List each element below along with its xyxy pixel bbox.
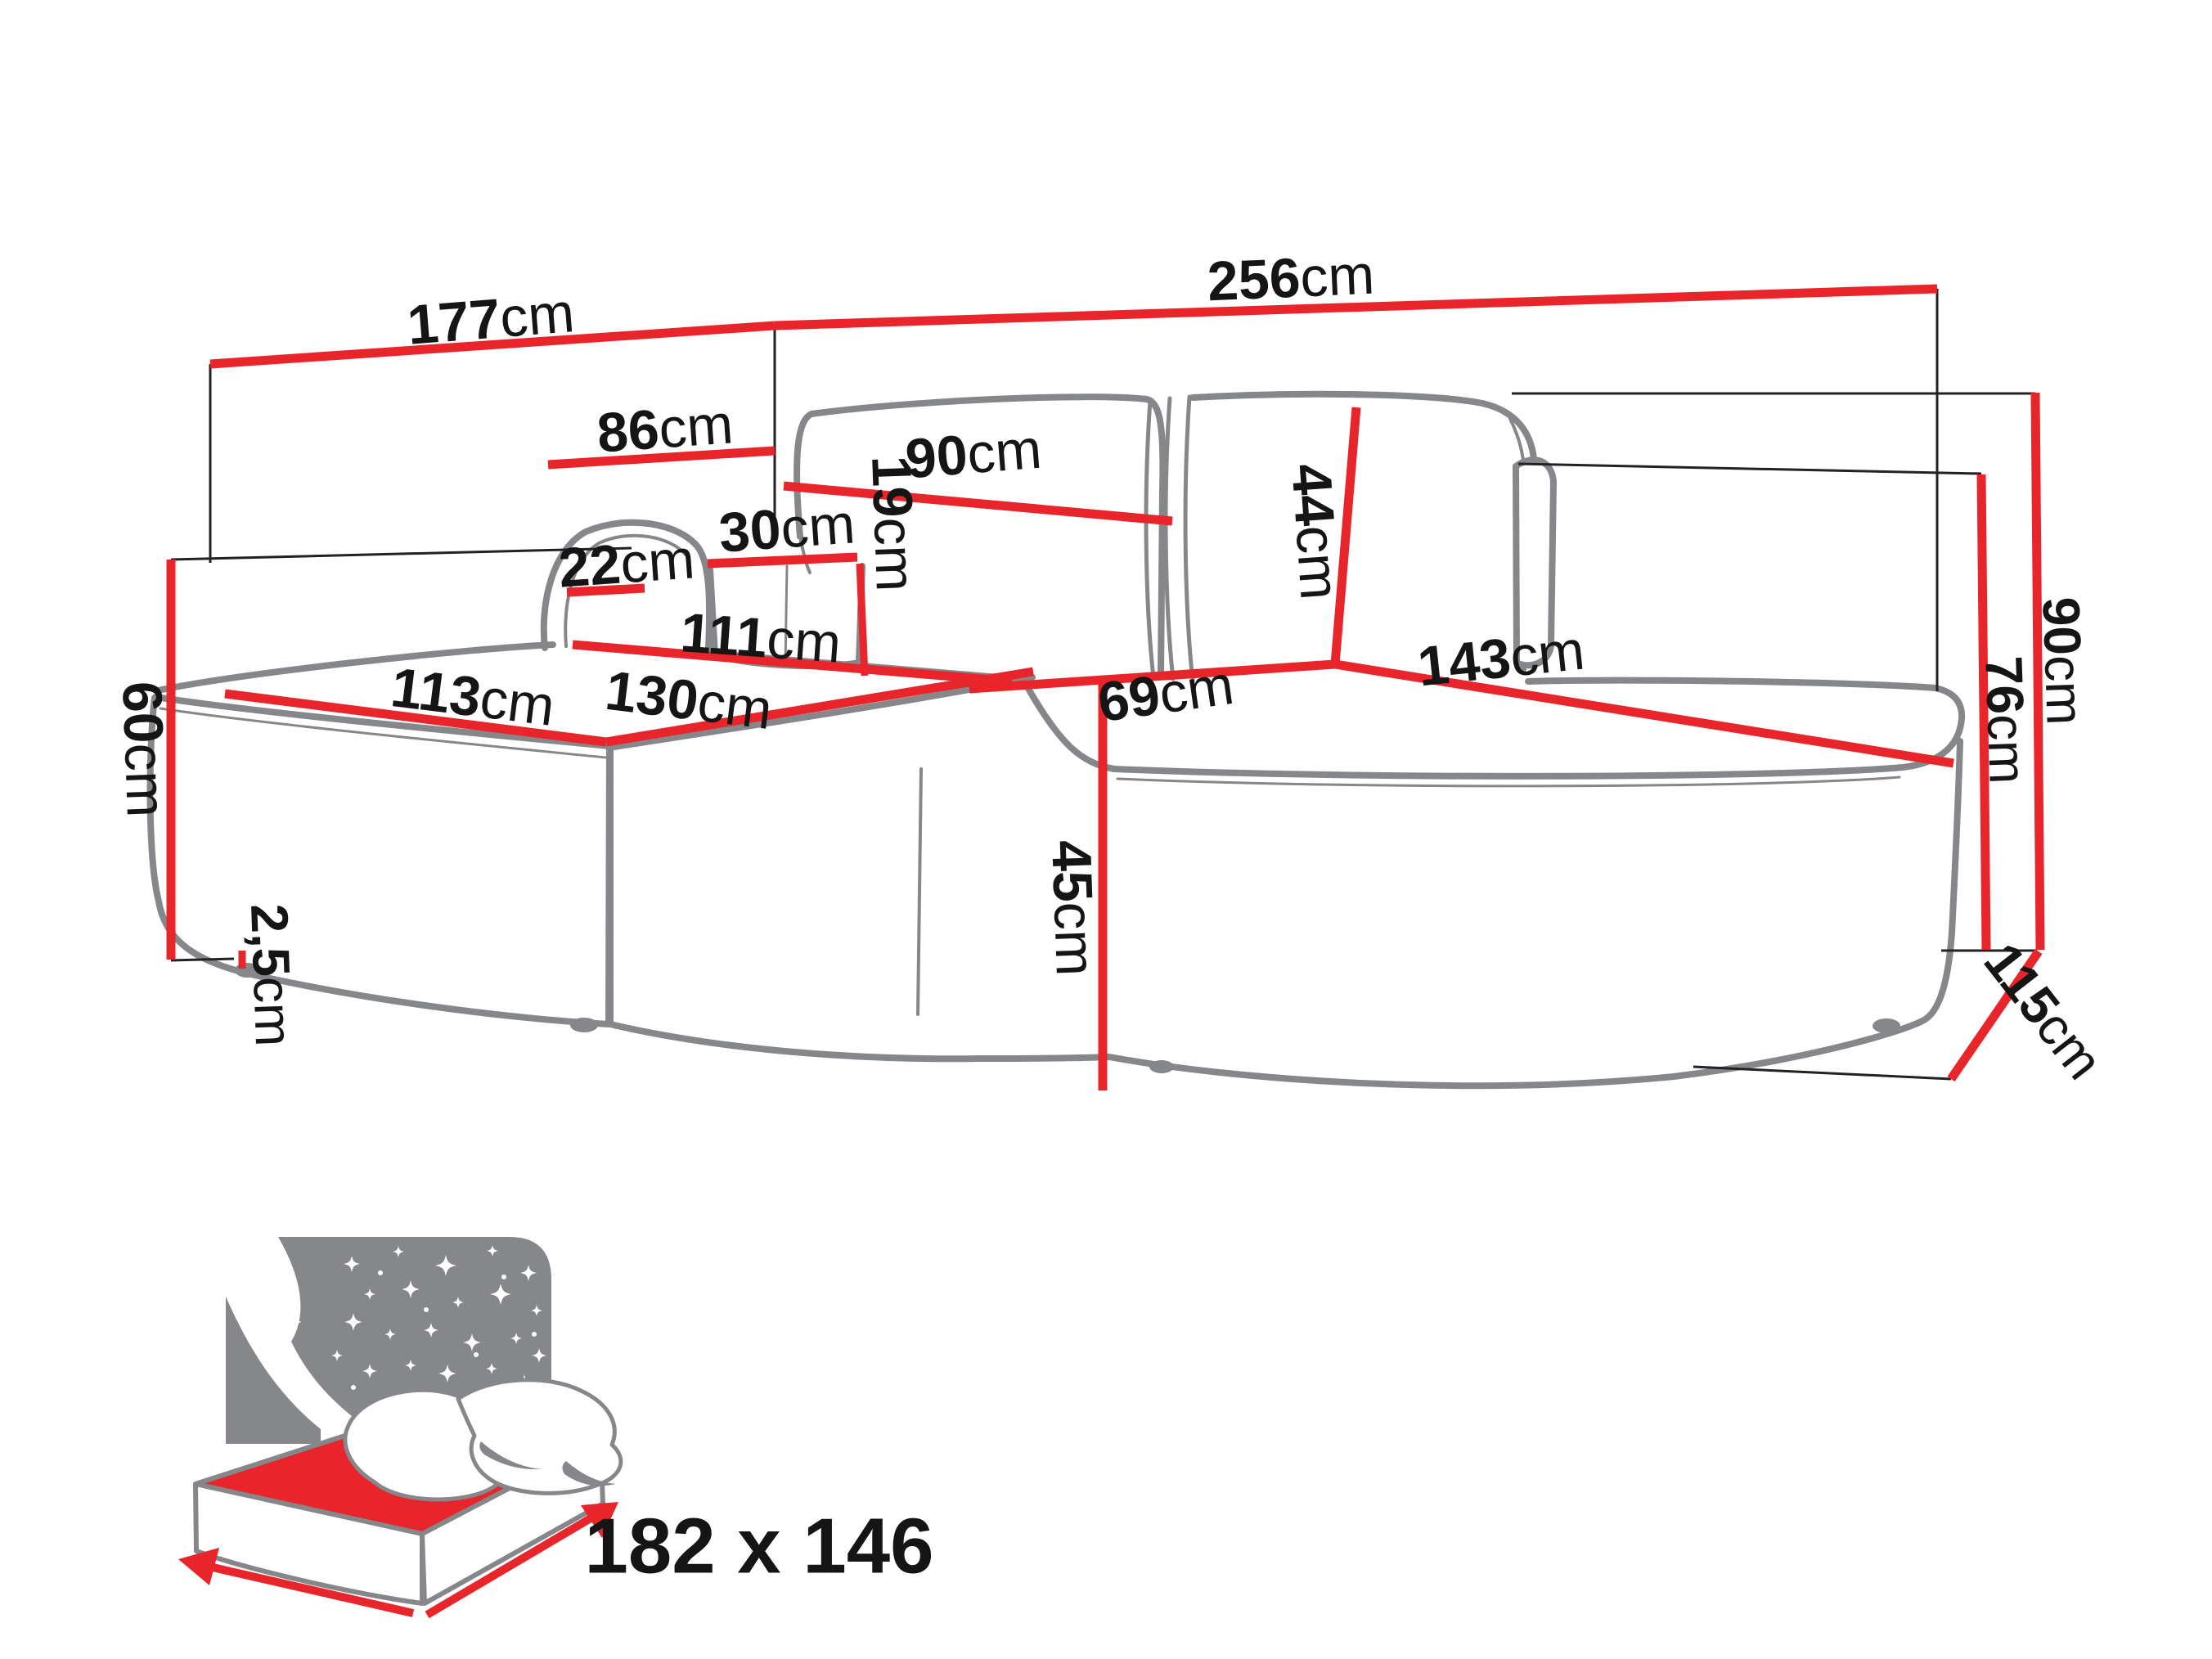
dim-label-19: 19cm [860,455,927,593]
sleeping-function-icon: 182 x 146 [178,1237,934,1615]
dim-label-177: 177cm [405,281,576,357]
dim-label-22: 22cm [556,528,696,599]
dim-label-30: 30cm [717,492,856,564]
pillows [345,1380,621,1499]
dim-label-2-5: 2,5cm [240,903,303,1048]
dim-label-45: 45cm [1040,839,1107,978]
dim-label-256: 256cm [1206,244,1375,313]
dim-label-44: 44cm [1279,461,1351,601]
sofa-outline [151,394,1962,1086]
dim-label-76: 76cm [1974,655,2037,785]
dim-label-143: 143cm [1415,619,1588,699]
dim-label-86: 86cm [595,393,735,464]
sleeping-size-label: 182 x 146 [584,1503,933,1590]
dim-label-69: 69cm [1094,654,1237,734]
dim-label-60: 60cm [110,681,178,819]
dim-label-90-height: 90cm [2031,596,2094,726]
dim-label-90-backrest: 90cm [903,418,1044,491]
dim-label-130: 130cm [602,659,776,741]
dimension-labels: 177cm 256cm 86cm 90cm 30cm 22cm 19cm 111… [110,244,2114,1090]
dimension-diagram: 177cm 256cm 86cm 90cm 30cm 22cm 19cm 111… [0,0,2212,1659]
dim-label-111: 111cm [678,601,843,675]
